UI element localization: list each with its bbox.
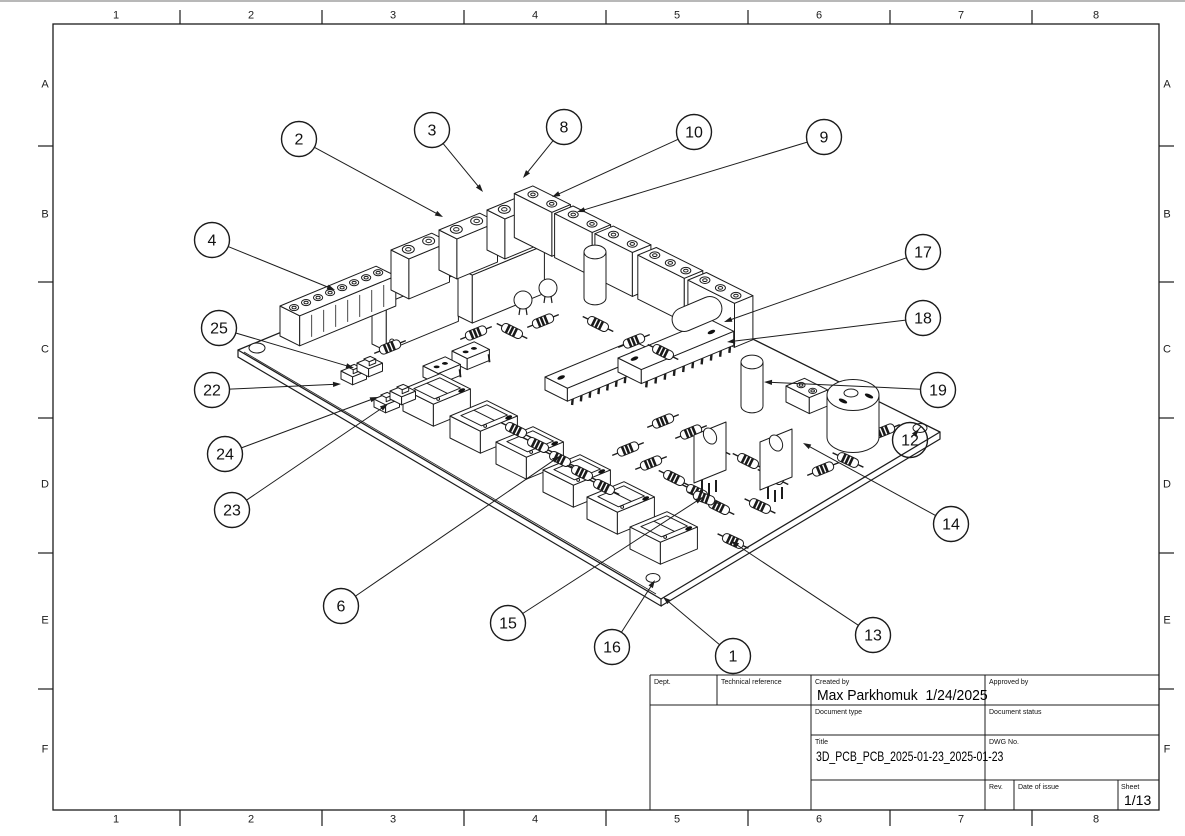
leader-line-2 <box>314 147 438 214</box>
balloon-number-24: 24 <box>216 447 234 464</box>
leader-arrowhead-10 <box>552 191 560 197</box>
leader-line-13 <box>735 544 858 626</box>
balloon-number-9: 9 <box>820 130 829 147</box>
balloon-number-17: 17 <box>914 245 932 262</box>
leader-line-4 <box>228 247 330 289</box>
balloon-number-2: 2 <box>295 132 304 149</box>
balloon-number-25: 25 <box>210 321 228 338</box>
grid-col-label-bottom-1: 1 <box>113 815 119 826</box>
leader-arrowhead-2 <box>435 211 443 217</box>
created-by-value: Max Parkhomuk 1/24/2025 <box>817 688 988 703</box>
title-value: 3D_PCB_PCB_2025-01-23_2025-01-23 <box>816 749 1003 763</box>
grid-col-label-bottom-4: 4 <box>532 815 538 826</box>
dept-label: Dept. <box>654 679 671 686</box>
leader-line-6 <box>355 459 555 596</box>
grid-row-label-right-D: D <box>1163 480 1171 491</box>
balloon-number-15: 15 <box>499 616 517 633</box>
leader-line-8 <box>526 141 553 174</box>
grid-col-label-top-7: 7 <box>958 11 964 22</box>
balloon-number-14: 14 <box>942 517 960 534</box>
sheet-label: Sheet <box>1121 784 1139 791</box>
balloon-number-12: 12 <box>901 433 919 450</box>
grid-row-label-right-F: F <box>1164 745 1171 756</box>
balloon-number-4: 4 <box>208 233 217 250</box>
grid-col-label-top-3: 3 <box>390 11 396 22</box>
grid-row-label-left-C: C <box>41 345 49 356</box>
leader-line-17 <box>729 258 907 321</box>
leader-line-18 <box>732 320 906 341</box>
balloon-number-19: 19 <box>929 383 947 400</box>
grid-row-label-left-B: B <box>41 210 48 221</box>
leader-line-1 <box>667 600 720 644</box>
rev-label: Rev. <box>989 784 1003 791</box>
document-type-label: Document type <box>815 709 862 716</box>
balloon-number-10: 10 <box>685 125 703 142</box>
created-by-label: Created by <box>815 679 849 686</box>
balloon-number-22: 22 <box>203 383 221 400</box>
grid-col-label-top-4: 4 <box>532 11 538 22</box>
balloon-number-8: 8 <box>560 120 569 137</box>
grid-row-label-left-A: A <box>41 80 48 91</box>
balloon-number-16: 16 <box>603 640 621 657</box>
grid-row-label-right-B: B <box>1163 210 1170 221</box>
grid-col-label-top-1: 1 <box>113 11 119 22</box>
grid-col-label-bottom-6: 6 <box>816 815 822 826</box>
grid-col-label-bottom-8: 8 <box>1093 815 1099 826</box>
grid-col-label-top-5: 5 <box>674 11 680 22</box>
balloon-number-23: 23 <box>223 503 241 520</box>
grid-row-label-right-E: E <box>1163 616 1170 627</box>
balloon-number-18: 18 <box>914 311 932 328</box>
balloon-number-3: 3 <box>428 123 437 140</box>
grid-col-label-top-2: 2 <box>248 11 254 22</box>
grid-col-label-top-8: 8 <box>1093 11 1099 22</box>
drawing-sheet: { "page": { "background": "#ffffff", "li… <box>0 0 1185 836</box>
grid-col-label-bottom-2: 2 <box>248 815 254 826</box>
grid-row-label-right-C: C <box>1163 345 1171 356</box>
document-status-label: Document status <box>989 709 1042 716</box>
technical-reference-label: Technical reference <box>721 679 782 686</box>
balloon-number-1: 1 <box>729 649 738 666</box>
grid-col-label-bottom-7: 7 <box>958 815 964 826</box>
grid-row-label-left-F: F <box>42 745 49 756</box>
dwg-no-label: DWG No. <box>989 739 1019 746</box>
date-of-issue-label: Date of issue <box>1018 784 1059 791</box>
leader-line-9 <box>582 142 807 210</box>
sheet-value: 1/13 <box>1124 793 1151 807</box>
grid-col-label-bottom-3: 3 <box>390 815 396 826</box>
grid-col-label-bottom-5: 5 <box>674 815 680 826</box>
title-label: Title <box>815 739 828 746</box>
balloon-number-6: 6 <box>337 599 346 616</box>
balloon-number-13: 13 <box>864 628 882 645</box>
grid-row-label-left-E: E <box>41 616 48 627</box>
grid-col-label-top-6: 6 <box>816 11 822 22</box>
leader-line-3 <box>443 144 480 189</box>
approved-by-label: Approved by <box>989 679 1028 686</box>
leader-line-24 <box>241 399 373 448</box>
grid-row-label-right-A: A <box>1163 80 1170 91</box>
grid-row-label-left-D: D <box>41 480 49 491</box>
